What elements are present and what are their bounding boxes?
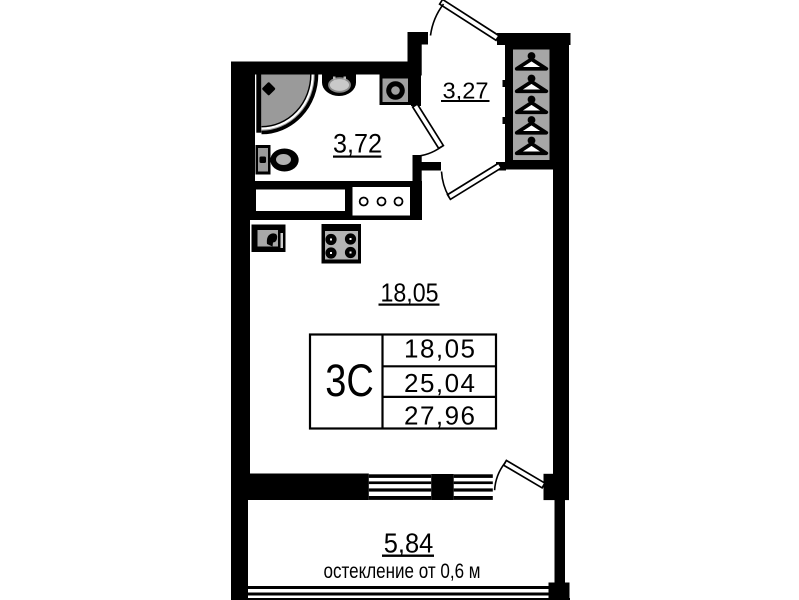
svg-text:25,04: 25,04 (404, 368, 475, 398)
svg-text:18,05: 18,05 (404, 334, 475, 364)
svg-text:3С: 3С (325, 355, 374, 406)
svg-text:остекление от 0,6 м: остекление от 0,6 м (324, 559, 481, 583)
svg-text:3,72: 3,72 (333, 129, 382, 159)
svg-text:27,96: 27,96 (404, 401, 475, 431)
svg-text:5,84: 5,84 (384, 528, 434, 559)
svg-text:18,05: 18,05 (381, 278, 439, 308)
svg-text:3,27: 3,27 (443, 78, 489, 104)
